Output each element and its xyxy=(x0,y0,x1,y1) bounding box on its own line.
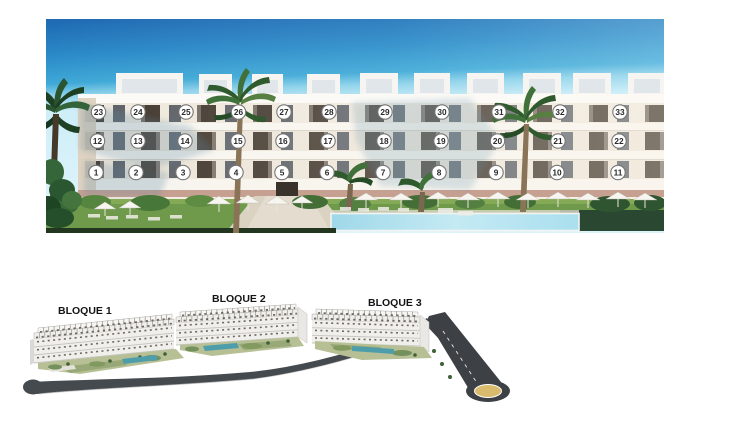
svg-text:1: 1 xyxy=(94,168,99,178)
svg-text:6: 6 xyxy=(325,168,330,178)
svg-text:24: 24 xyxy=(133,107,143,117)
svg-text:20: 20 xyxy=(493,136,503,146)
svg-text:28: 28 xyxy=(324,107,334,117)
svg-text:5: 5 xyxy=(280,168,285,178)
svg-text:30: 30 xyxy=(437,107,447,117)
svg-text:21: 21 xyxy=(553,136,563,146)
svg-text:10: 10 xyxy=(552,168,562,178)
svg-text:4: 4 xyxy=(234,168,239,178)
svg-text:2: 2 xyxy=(134,168,139,178)
svg-text:7: 7 xyxy=(381,168,386,178)
svg-text:15: 15 xyxy=(233,136,243,146)
svg-text:8: 8 xyxy=(437,168,442,178)
svg-text:16: 16 xyxy=(278,136,288,146)
svg-text:14: 14 xyxy=(180,136,190,146)
svg-text:BLOQUE 1: BLOQUE 1 xyxy=(58,305,112,317)
svg-text:23: 23 xyxy=(94,107,104,117)
svg-text:18: 18 xyxy=(379,136,389,146)
svg-text:12: 12 xyxy=(93,136,103,146)
svg-text:33: 33 xyxy=(615,107,625,117)
svg-text:31: 31 xyxy=(494,107,504,117)
svg-text:25: 25 xyxy=(181,107,191,117)
svg-text:27: 27 xyxy=(279,107,289,117)
svg-text:17: 17 xyxy=(323,136,333,146)
svg-text:32: 32 xyxy=(555,107,565,117)
svg-text:BLOQUE 3: BLOQUE 3 xyxy=(368,297,422,309)
svg-text:26: 26 xyxy=(234,107,244,117)
svg-text:9: 9 xyxy=(494,168,499,178)
svg-text:11: 11 xyxy=(614,168,623,178)
svg-text:BLOQUE 2: BLOQUE 2 xyxy=(212,293,266,305)
svg-text:13: 13 xyxy=(133,136,143,146)
svg-text:22: 22 xyxy=(614,136,624,146)
svg-text:19: 19 xyxy=(436,136,446,146)
svg-text:3: 3 xyxy=(181,168,186,178)
svg-text:29: 29 xyxy=(380,107,390,117)
